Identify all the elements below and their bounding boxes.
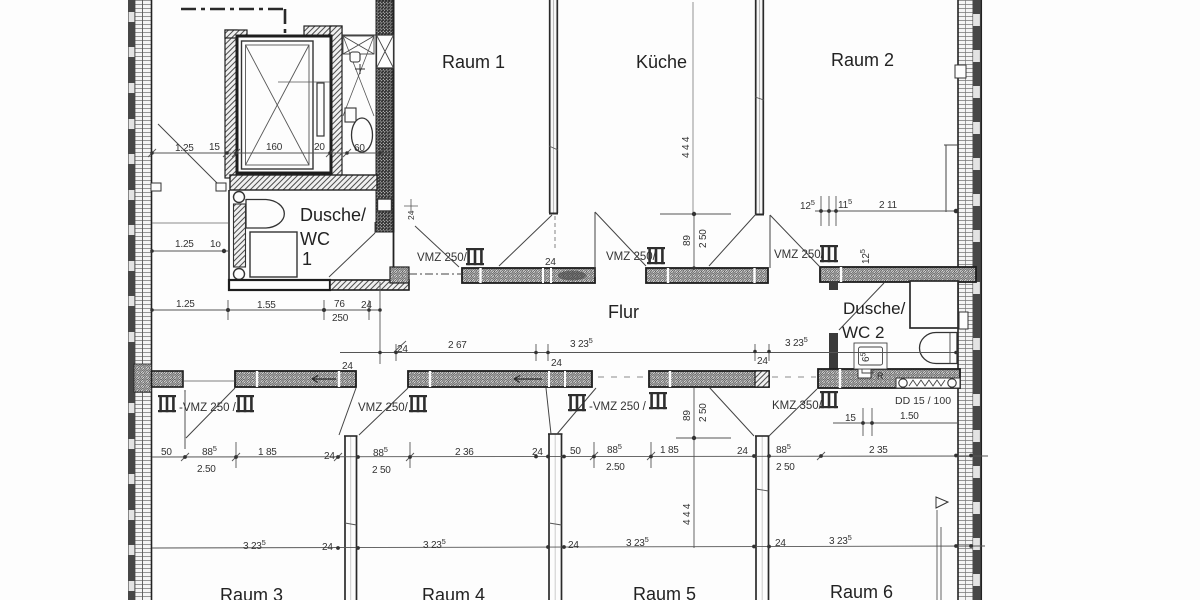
svg-text:Raum 1: Raum 1 — [442, 52, 505, 72]
svg-text:Raum 3: Raum 3 — [220, 585, 283, 600]
svg-text:1.25: 1.25 — [176, 299, 195, 310]
svg-text:1.55: 1.55 — [257, 300, 276, 311]
svg-text:24: 24 — [361, 300, 372, 311]
svg-text:160: 160 — [266, 142, 283, 153]
svg-text:VMZ 250/: VMZ 250/ — [417, 252, 468, 264]
svg-text:Raum 5: Raum 5 — [633, 584, 696, 600]
svg-text:24: 24 — [342, 361, 353, 372]
svg-text:24: 24 — [397, 344, 408, 355]
svg-text:2 36: 2 36 — [455, 447, 474, 458]
svg-text:VMZ 250/: VMZ 250/ — [358, 402, 409, 414]
svg-text:Flur: Flur — [608, 302, 639, 322]
svg-text:Raum 6: Raum 6 — [830, 582, 893, 600]
svg-text:60: 60 — [354, 143, 365, 154]
svg-text:2.50: 2.50 — [197, 464, 216, 475]
svg-text:15: 15 — [845, 413, 856, 424]
svg-text:2 50: 2 50 — [776, 462, 795, 473]
svg-text:Raum 2: Raum 2 — [831, 50, 894, 70]
svg-text:250: 250 — [332, 313, 349, 324]
svg-text:1 85: 1 85 — [660, 445, 679, 456]
svg-text:WC: WC — [300, 229, 330, 249]
svg-text:76: 76 — [334, 299, 345, 310]
svg-text:50: 50 — [161, 447, 172, 458]
svg-text:24: 24 — [757, 356, 768, 367]
svg-text:24: 24 — [568, 540, 579, 551]
svg-text:2 11: 2 11 — [879, 200, 898, 211]
svg-text:24: 24 — [406, 210, 416, 220]
svg-text:2 35: 2 35 — [869, 445, 888, 456]
svg-text:1: 1 — [302, 249, 312, 269]
svg-text:24: 24 — [551, 358, 562, 369]
svg-text:50: 50 — [570, 446, 581, 457]
svg-text:Küche: Küche — [636, 52, 687, 72]
svg-text:24: 24 — [324, 451, 335, 462]
svg-text:1.25: 1.25 — [175, 143, 194, 154]
svg-text:24: 24 — [545, 257, 556, 268]
svg-text:1 85: 1 85 — [258, 447, 277, 458]
svg-text:20: 20 — [314, 142, 325, 153]
svg-text:Raum 4: Raum 4 — [422, 585, 485, 600]
svg-text:89: 89 — [682, 410, 693, 421]
svg-text:-VMZ 250 /: -VMZ 250 / — [179, 402, 237, 414]
svg-text:R: R — [877, 371, 884, 381]
svg-text:89: 89 — [682, 235, 693, 246]
svg-text:WC 2: WC 2 — [842, 323, 885, 342]
svg-text:4 4 4: 4 4 4 — [682, 503, 693, 525]
svg-text:2 50: 2 50 — [372, 465, 391, 476]
svg-text:15: 15 — [209, 142, 220, 153]
svg-text:24: 24 — [322, 542, 333, 553]
svg-text:2 50: 2 50 — [698, 403, 709, 422]
svg-text:2 67: 2 67 — [448, 340, 467, 351]
svg-text:24: 24 — [775, 538, 786, 549]
svg-text:Dusche/: Dusche/ — [843, 299, 906, 318]
svg-text:24: 24 — [737, 446, 748, 457]
svg-text:1.50: 1.50 — [900, 411, 919, 422]
svg-text:Dusche/: Dusche/ — [300, 205, 366, 225]
svg-text:1.25: 1.25 — [175, 239, 194, 250]
svg-text:DD 15 / 100: DD 15 / 100 — [895, 395, 951, 407]
svg-text:VMZ 250/: VMZ 250/ — [774, 249, 825, 261]
svg-text:24: 24 — [532, 447, 543, 458]
svg-text:4 4 4: 4 4 4 — [681, 136, 692, 158]
svg-text:1o: 1o — [210, 239, 221, 250]
svg-text:KMZ 350/: KMZ 350/ — [772, 400, 823, 412]
svg-text:2 50: 2 50 — [698, 229, 709, 248]
svg-text:2.50: 2.50 — [606, 462, 625, 473]
svg-text:-VMZ 250 /: -VMZ 250 / — [589, 401, 647, 413]
